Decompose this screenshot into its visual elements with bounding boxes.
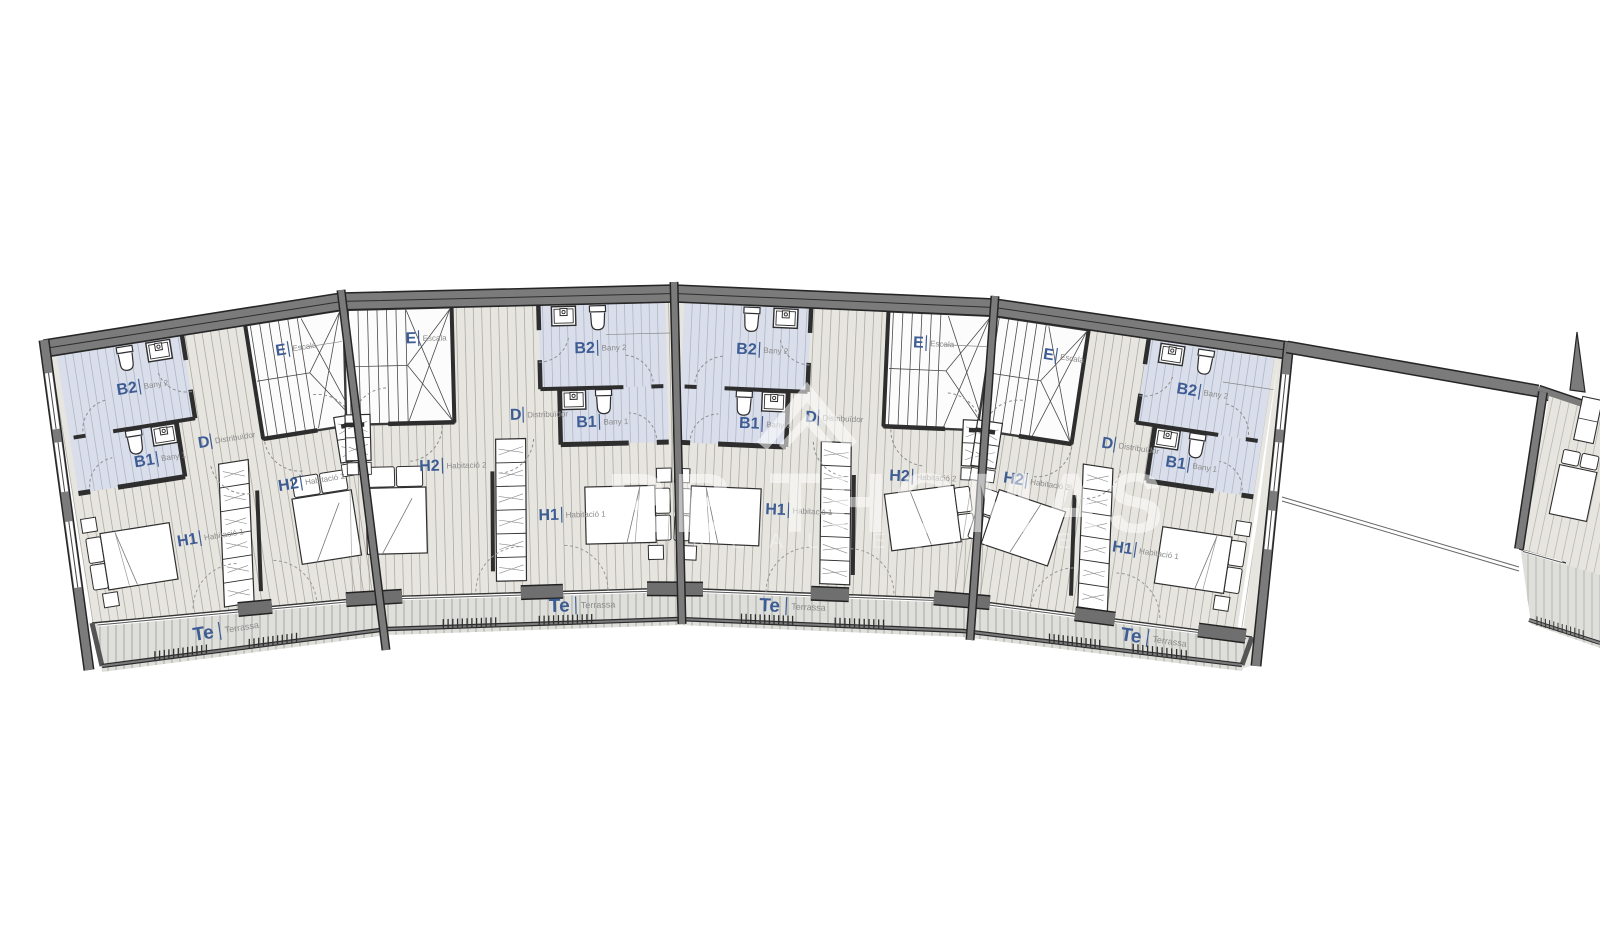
svg-text:B2: B2 [574, 340, 595, 357]
svg-text:Te: Te [191, 622, 215, 646]
svg-text:B2: B2 [736, 341, 757, 359]
svg-text:REAL ESTATE: REAL ESTATE [692, 530, 1094, 553]
svg-text:B1: B1 [576, 414, 597, 431]
svg-text:D: D [510, 407, 522, 424]
svg-text:Bany 2: Bany 2 [763, 346, 789, 356]
svg-text:B1: B1 [739, 415, 760, 433]
svg-text:H1: H1 [538, 507, 559, 524]
svg-text:Bany 1: Bany 1 [603, 417, 629, 427]
svg-text:E: E [405, 330, 416, 347]
svg-text:E: E [913, 334, 925, 351]
svg-text:H2: H2 [277, 475, 300, 495]
svg-text:H1: H1 [176, 531, 199, 551]
svg-text:Habitació 1: Habitació 1 [566, 510, 607, 520]
svg-text:Terrassa: Terrassa [581, 599, 616, 610]
svg-text:Distribuïdor: Distribuïdor [527, 409, 568, 419]
svg-text:Bany 2: Bany 2 [602, 343, 628, 353]
svg-text:Habitació 2: Habitació 2 [446, 460, 487, 470]
svg-text:Escala: Escala [930, 339, 955, 349]
svg-text:B2: B2 [1175, 380, 1198, 400]
svg-text:Te: Te [759, 595, 781, 617]
svg-text:Escala: Escala [423, 333, 448, 343]
svg-text:B2: B2 [116, 379, 139, 399]
svg-text:Te: Te [549, 595, 570, 617]
svg-text:Terrassa: Terrassa [791, 601, 826, 612]
svg-text:H2: H2 [419, 458, 440, 475]
svg-text:Te: Te [1119, 624, 1143, 648]
svg-text:B1: B1 [133, 451, 156, 471]
